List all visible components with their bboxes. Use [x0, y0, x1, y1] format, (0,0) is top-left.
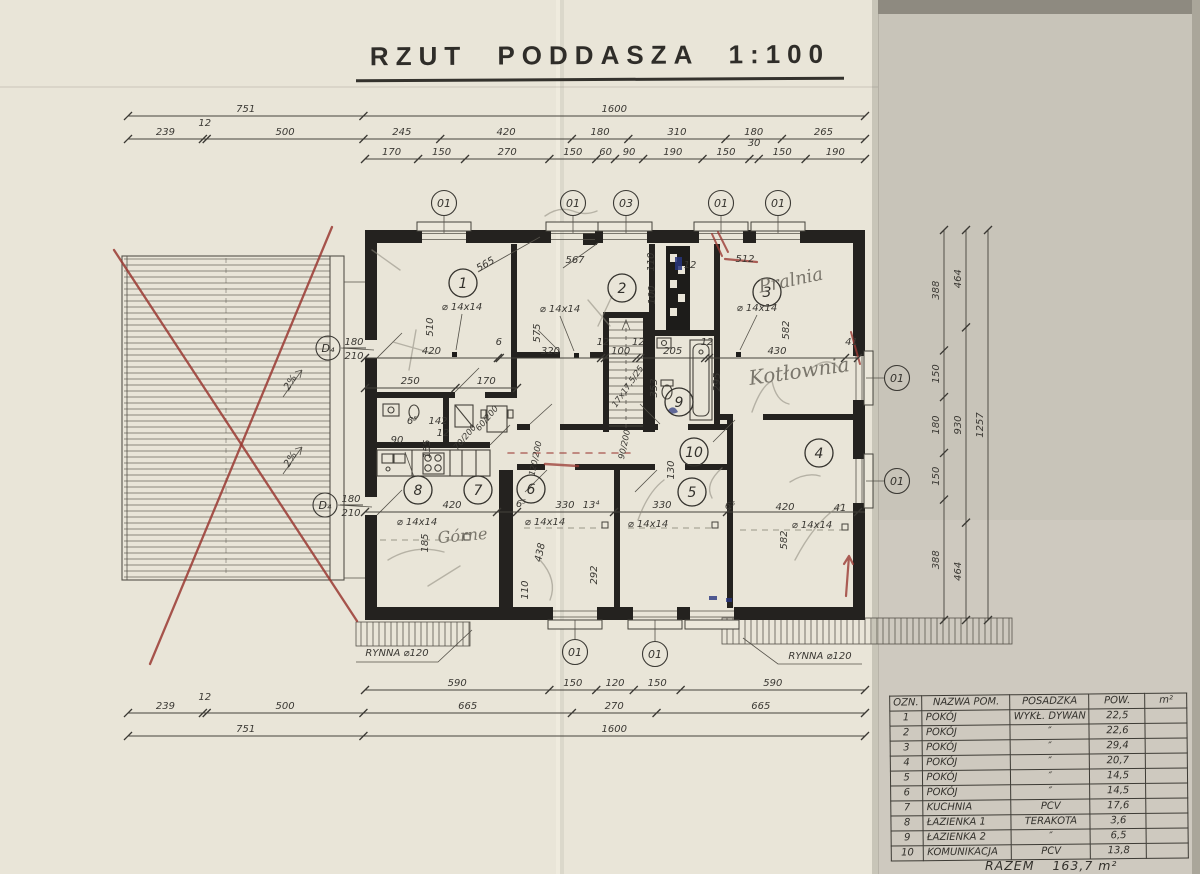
window-tag-label: 01 — [714, 197, 728, 210]
schedule-col-header: m² — [1145, 693, 1187, 708]
handwritten-note: Górne — [437, 524, 488, 547]
room-number: 8 — [404, 476, 432, 504]
dim-label: 6⁵ — [407, 416, 417, 427]
terrace-deck — [122, 256, 365, 580]
dim-label: 665 — [458, 701, 477, 712]
dim-label: 150 — [931, 364, 942, 383]
dim-chain: 388150180150388 — [931, 226, 948, 624]
room-number-label: 9 — [675, 395, 684, 411]
dim-label: 150 — [563, 678, 582, 689]
room-number: 6 — [517, 475, 545, 503]
schedule-cell: 10 — [891, 846, 924, 861]
kitchen-counter — [377, 450, 490, 476]
dim-label: 60 — [599, 147, 612, 158]
dim-chain: 420632012100122051243041 — [361, 337, 862, 362]
schedule-cell: 20,7 — [1090, 753, 1146, 769]
schedule-cell: 9 — [891, 831, 924, 846]
dim-label: 41 — [845, 337, 858, 348]
schedule-cell: 22,6 — [1089, 723, 1145, 739]
window-tag-label: 01 — [648, 648, 662, 661]
gutter-hatch-strips — [356, 618, 1012, 646]
dim-label: 12 — [701, 337, 714, 348]
dim-label: 388 — [931, 281, 942, 300]
dim-label: 120 — [605, 678, 624, 689]
room-number: 7 — [464, 476, 492, 504]
schedule-cell — [1146, 783, 1188, 798]
dim-chain: 464930464 — [953, 226, 970, 624]
schedule-total: RAZEM163,7 m² — [985, 858, 1135, 873]
dim-label: 239 — [156, 701, 175, 712]
window-tag: 01 — [885, 469, 910, 494]
schedule-cell: 2 — [890, 726, 923, 741]
schedule-cell: POKÓJ — [922, 725, 1010, 741]
schedule-cell: 22,5 — [1089, 708, 1145, 724]
window-tag: 01 — [643, 642, 668, 667]
dim-label: 510 — [425, 317, 436, 336]
handwritten-note: Pralnia — [756, 264, 825, 298]
total-label: RAZEM — [985, 858, 1034, 873]
room-number: 5 — [678, 478, 706, 506]
dim-label: 438 — [533, 542, 548, 563]
dim-label: 270 — [605, 701, 624, 712]
window-tag: 01 — [766, 191, 791, 216]
dim-label: 41 — [834, 503, 847, 514]
dim-label: 575 — [532, 323, 543, 342]
door-size-num: 180 — [344, 337, 363, 348]
dim-label: 180 — [931, 415, 942, 434]
dim-label: 265 — [814, 127, 833, 138]
dim-label: 185 — [420, 533, 431, 552]
schedule-cell: ″ — [1010, 739, 1089, 755]
dim-label: 590 — [448, 678, 467, 689]
schedule-cell: 3,6 — [1090, 813, 1146, 829]
schedule-cell: ″ — [1011, 829, 1090, 845]
dim-label: ⌀ 14x14 — [628, 519, 669, 530]
dim-label: 582 — [779, 530, 790, 549]
window-tag: 03 — [614, 191, 639, 216]
dim-label: ⌀ 14x14 — [792, 520, 833, 531]
dim-chain: 7511600 — [124, 104, 869, 120]
dim-label: 150 — [773, 147, 792, 158]
room-number-label: 5 — [688, 485, 697, 501]
dim-label: 512 — [735, 254, 754, 265]
schedule-cell: 6 — [891, 786, 924, 801]
schedule-cell: ″ — [1010, 724, 1089, 740]
dim-chain: 590150120150590 — [361, 678, 869, 694]
dim-label: 1600 — [601, 724, 626, 735]
dim-label: 388 — [931, 550, 942, 569]
dim-label: 130 — [666, 460, 677, 479]
room-number: 9 — [665, 388, 693, 416]
dim-label: 12 — [198, 118, 211, 129]
dim-label: 320 — [541, 346, 560, 357]
room-number: 4 — [805, 439, 833, 467]
dim-label: 155 — [422, 439, 433, 458]
dim-label: 567 — [565, 255, 585, 266]
dim-label: RYNNA ⌀120 — [788, 651, 851, 662]
window-tag-label: 01 — [890, 372, 904, 385]
dim-label: 90 — [623, 147, 636, 158]
dim-label: 565 — [475, 255, 497, 274]
dim-label: 930 — [953, 415, 964, 434]
schedule-cell: POKÓJ — [923, 755, 1011, 771]
dim-label: 110 — [646, 252, 657, 271]
door-tag-label: D₄ — [322, 342, 335, 355]
dim-label: 420 — [442, 500, 461, 511]
window-tag: 01 — [432, 191, 457, 216]
dim-label: 420 — [422, 346, 441, 357]
dim-label: 120/200 — [527, 440, 544, 477]
schedule-cell: 14,5 — [1090, 783, 1146, 799]
schedule-cell: 1 — [890, 711, 923, 726]
dim-label: 12 — [684, 260, 697, 271]
dim-label: 17x17,5/25 — [610, 364, 646, 409]
schedule-cell: 14,5 — [1090, 768, 1146, 784]
door-size-den: 210 — [344, 351, 363, 362]
room-number-label: 6 — [527, 482, 536, 498]
window-tag: 01 — [563, 640, 588, 665]
room-number-label: 4 — [815, 446, 824, 462]
schedule-cell: ″ — [1011, 754, 1090, 770]
schedule-cell: ŁAZIENKA 1 — [923, 815, 1011, 831]
room-number: 2 — [608, 274, 636, 302]
schedule-cell: ″ — [1011, 769, 1090, 785]
window-tag-label: 01 — [566, 197, 580, 210]
dim-label: 6⁵ — [725, 501, 735, 512]
dim-label: 590 — [763, 678, 782, 689]
schedule-cell — [1146, 738, 1188, 753]
dim-label: 430 — [767, 346, 786, 357]
dim-label: 330 — [652, 500, 671, 511]
schedule-col-header: OZN. — [890, 696, 923, 711]
dim-label: 464 — [953, 562, 964, 581]
dim-label: 310 — [667, 127, 686, 138]
schedule-cell: 4 — [890, 756, 923, 771]
dim-label: 245 — [392, 127, 411, 138]
room-number-label: 1 — [459, 276, 468, 292]
schedule-cell: POKÓJ — [922, 710, 1010, 726]
dim-label: ⌀ 14x14 — [525, 517, 566, 528]
window-tag-label: 01 — [437, 197, 451, 210]
dim-label: 12 — [597, 337, 610, 348]
window-tag-label: 01 — [568, 646, 582, 659]
dim-label: 190 — [826, 147, 845, 158]
room-number-label: 7 — [474, 483, 483, 499]
room-number-label: 10 — [685, 445, 703, 461]
dim-label: 500 — [276, 127, 295, 138]
schedule-cell: KUCHNIA — [923, 800, 1011, 816]
dim-label: 295 — [712, 372, 723, 391]
dim-label: RYNNA ⌀120 — [365, 648, 428, 659]
dim-label: 150 — [563, 147, 582, 158]
washbasin-bath1 — [383, 404, 399, 416]
dim-label: 420 — [775, 502, 794, 513]
dim-label: 150 — [931, 467, 942, 486]
dim-chain: 23912500665270665 — [124, 692, 869, 717]
dim-label: 13⁴ — [583, 499, 600, 511]
dim-label: ⌀ 14x14 — [540, 304, 581, 315]
schedule-cell: 8 — [891, 816, 924, 831]
window-tag-label: 01 — [771, 197, 785, 210]
dim-label: 12 — [437, 428, 450, 439]
dim-label: 464 — [953, 269, 964, 288]
dim-label: 751 — [236, 104, 255, 115]
dim-label: 190 — [663, 147, 682, 158]
room-number: 10 — [680, 438, 708, 466]
dim-label: ⌀ 14x14 — [397, 517, 438, 528]
dim-label: 751 — [236, 724, 255, 735]
dim-label: 90 — [391, 435, 404, 446]
dim-label: 90/200 — [617, 429, 633, 460]
dim-label: 582 — [781, 320, 792, 339]
dim-label: 292 — [589, 565, 600, 584]
schedule-cell — [1146, 753, 1188, 768]
room-number: 1 — [449, 269, 477, 297]
schedule-cell: 29,4 — [1090, 738, 1146, 754]
schedule-cell: POKÓJ — [923, 740, 1011, 756]
dim-label: 30 — [748, 138, 761, 149]
dim-label: 420 — [497, 127, 516, 138]
dim-label: 100 — [647, 285, 658, 304]
room-schedule-table: OZN.NAZWA POM.POSADZKAPOW.m² 1POKÓJWYKŁ.… — [889, 692, 1189, 861]
schedule-cell: PCV — [1011, 799, 1090, 815]
dim-label: 12 — [632, 337, 645, 348]
schedule-cell: 6,5 — [1091, 828, 1147, 844]
dim-chain: 7511600 — [124, 724, 869, 740]
door-size-num: 180 — [341, 494, 360, 505]
dim-label: 6 — [496, 337, 502, 348]
schedule-cell — [1146, 768, 1188, 783]
window-top-3 — [598, 222, 652, 240]
dim-chain: 1257 — [975, 226, 992, 624]
schedule-col-header: NAZWA POM. — [922, 695, 1010, 711]
schedule-cell: POKÓJ — [923, 785, 1011, 801]
schedule-cell — [1147, 843, 1189, 858]
total-value: 163,7 m² — [1052, 858, 1117, 873]
schedule-cell: ″ — [1011, 784, 1090, 800]
dim-chain: 250170 — [361, 376, 521, 392]
dim-label: 170 — [382, 147, 401, 158]
window-tag: 01 — [885, 366, 910, 391]
schedule-cell: 13,8 — [1091, 843, 1147, 859]
dim-label: 239 — [156, 127, 175, 138]
schedule-col-header: POSADZKA — [1010, 694, 1089, 710]
dim-label: 330 — [555, 500, 574, 511]
schedule-cell: 17,6 — [1090, 798, 1146, 814]
dim-label: ⌀ 14x14 — [737, 303, 778, 314]
dim-label: ⌀ 14x14 — [442, 302, 483, 313]
schedule-cell: 5 — [890, 771, 923, 786]
schedule-cell — [1146, 813, 1188, 828]
dim-label: 150 — [716, 147, 735, 158]
dim-label: 6⁵ — [516, 499, 526, 510]
bathtub — [690, 340, 712, 420]
schedule-col-header: POW. — [1089, 693, 1145, 709]
dim-label: 500 — [276, 701, 295, 712]
door-size-den: 210 — [341, 508, 360, 519]
dim-label: 142 — [428, 416, 447, 427]
dim-label: 250 — [401, 376, 420, 387]
room-number-label: 8 — [414, 483, 423, 499]
dim-label: 270 — [498, 147, 517, 158]
dim-label: 1257 — [975, 412, 986, 438]
dim-label: 180 — [591, 127, 610, 138]
dim-label: 353 — [649, 378, 660, 397]
dim-label: 170 — [477, 376, 496, 387]
schedule-cell — [1145, 723, 1187, 738]
window-bottom-3 — [685, 611, 739, 629]
dim-label: 665 — [751, 701, 770, 712]
schedule-cell: WYKŁ. DYWAN — [1010, 709, 1089, 725]
schedule-cell: ŁAZIENKA 2 — [923, 830, 1011, 846]
dim-label: 110 — [520, 580, 531, 599]
schedule-cell — [1146, 798, 1188, 813]
door-tag-label: D₄ — [319, 499, 332, 512]
window-tag-label: 01 — [890, 475, 904, 488]
room-number-label: 2 — [618, 281, 627, 297]
dim-label: 180 — [744, 127, 763, 138]
schedule-cell: 3 — [890, 741, 923, 756]
dim-label: 150 — [648, 678, 667, 689]
dim-label: 150 — [432, 147, 451, 158]
schedule-cell — [1146, 828, 1188, 843]
schedule-cell: TERAKOTA — [1011, 814, 1090, 830]
dim-label: 12 — [198, 692, 211, 703]
dim-label: 100 — [611, 346, 630, 357]
window-tag: 01 — [709, 191, 734, 216]
window-tag-label: 03 — [619, 197, 633, 210]
dim-label: 1600 — [601, 104, 626, 115]
schedule-cell: 7 — [891, 801, 924, 816]
scanned-floor-plan-sheet: RZUT PODDASZA 1:100 — [0, 0, 1200, 874]
schedule-cell — [1145, 708, 1187, 723]
dim-label: 205 — [663, 346, 682, 357]
schedule-cell: POKÓJ — [923, 770, 1011, 786]
